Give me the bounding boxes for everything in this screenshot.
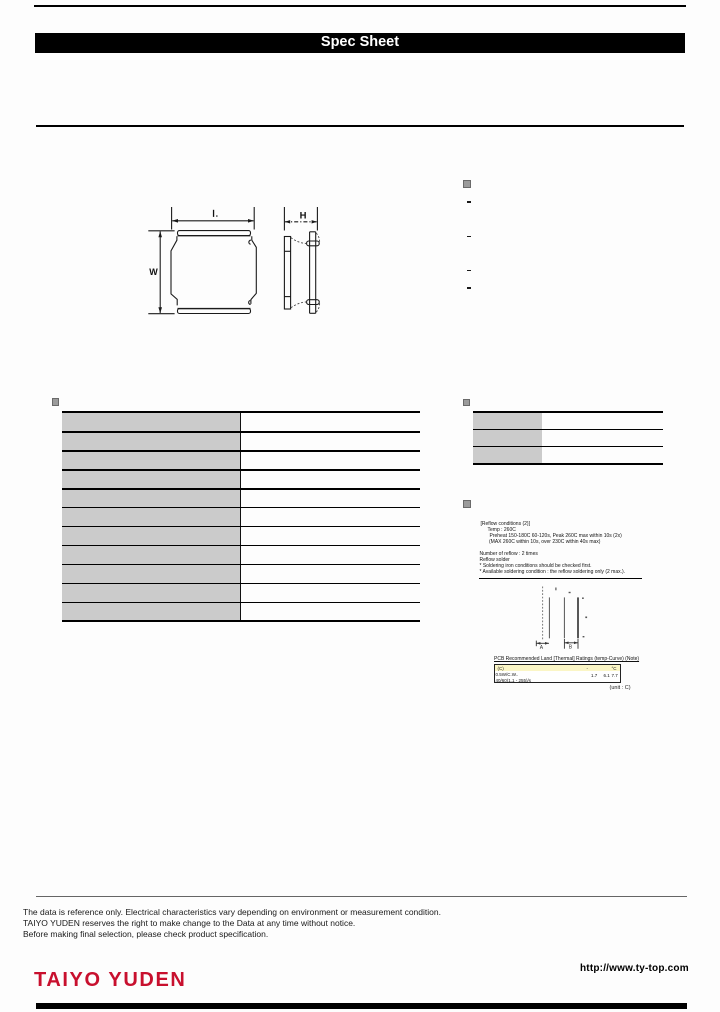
svg-text:H: H [300, 210, 307, 221]
svg-text:B: B [569, 645, 573, 651]
svg-text:A: A [540, 645, 544, 651]
svg-text:W: W [149, 267, 158, 277]
